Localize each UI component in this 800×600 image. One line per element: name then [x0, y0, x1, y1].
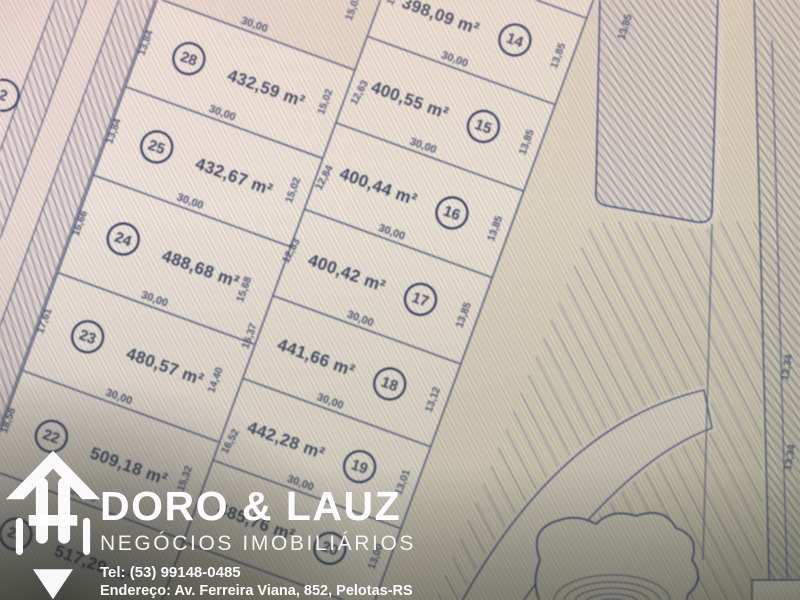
screen-photo: 13,85 13,34 13,34 2 28 432,59 m²	[0, 0, 800, 600]
hatched-wedge-island	[596, 0, 718, 222]
realtor-logo-block: DORO & LAUZ NEGÓCIOS IMOBILIÁRIOS Tel: (…	[0, 420, 480, 600]
company-name: DORO & LAUZ	[100, 485, 416, 528]
company-tagline: NEGÓCIOS IMOBILIÁRIOS	[100, 532, 416, 555]
address: Endereço: Av. Ferreira Viana, 852, Pelot…	[100, 582, 416, 600]
phone-number: Tel: (53) 99148-0485	[100, 564, 416, 582]
divider-dim: 15,02	[343, 0, 363, 22]
house-arrow-logo-icon	[3, 446, 103, 600]
corner-structure	[752, 580, 800, 600]
pond-outline	[536, 513, 699, 600]
